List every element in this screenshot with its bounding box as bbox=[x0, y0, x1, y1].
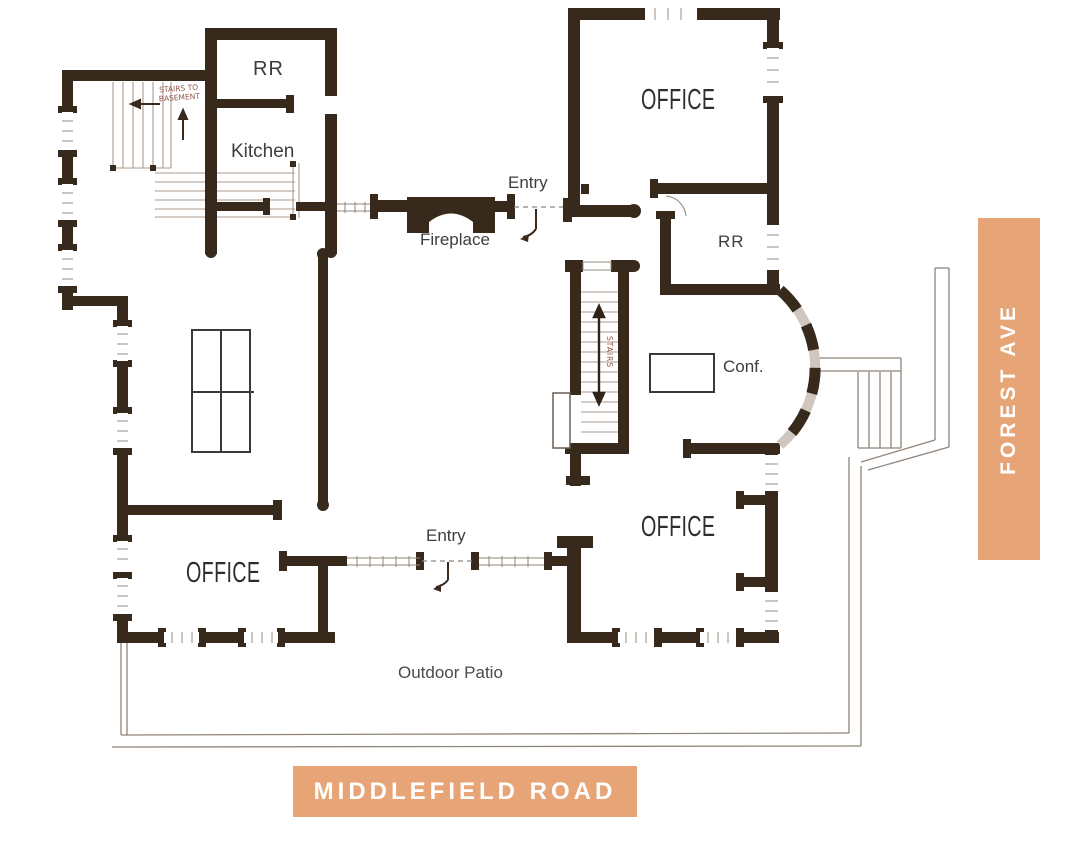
bay-window bbox=[780, 290, 815, 445]
stairwell-chimney bbox=[553, 393, 570, 448]
floor-plan-page: RR Kitchen OFFICE Entry Fireplace RR Con… bbox=[0, 0, 1073, 845]
street-label-forest-ave: FOREST AVE bbox=[997, 303, 1021, 475]
stairs-direction-arrows bbox=[131, 100, 187, 140]
floor-plan-drawing bbox=[0, 0, 1073, 845]
central-staircase-arrow bbox=[594, 306, 604, 404]
windows bbox=[62, 8, 779, 643]
fireplace-shape bbox=[370, 194, 515, 233]
left-room-tables bbox=[192, 330, 254, 452]
street-banner-forest-ave: FOREST AVE bbox=[978, 218, 1040, 560]
conference-table bbox=[650, 354, 714, 392]
street-label-middlefield-road: MIDDLEFIELD ROAD bbox=[314, 778, 617, 806]
street-banner-middlefield-road: MIDDLEFIELD ROAD bbox=[293, 766, 637, 817]
walls bbox=[58, 8, 783, 647]
